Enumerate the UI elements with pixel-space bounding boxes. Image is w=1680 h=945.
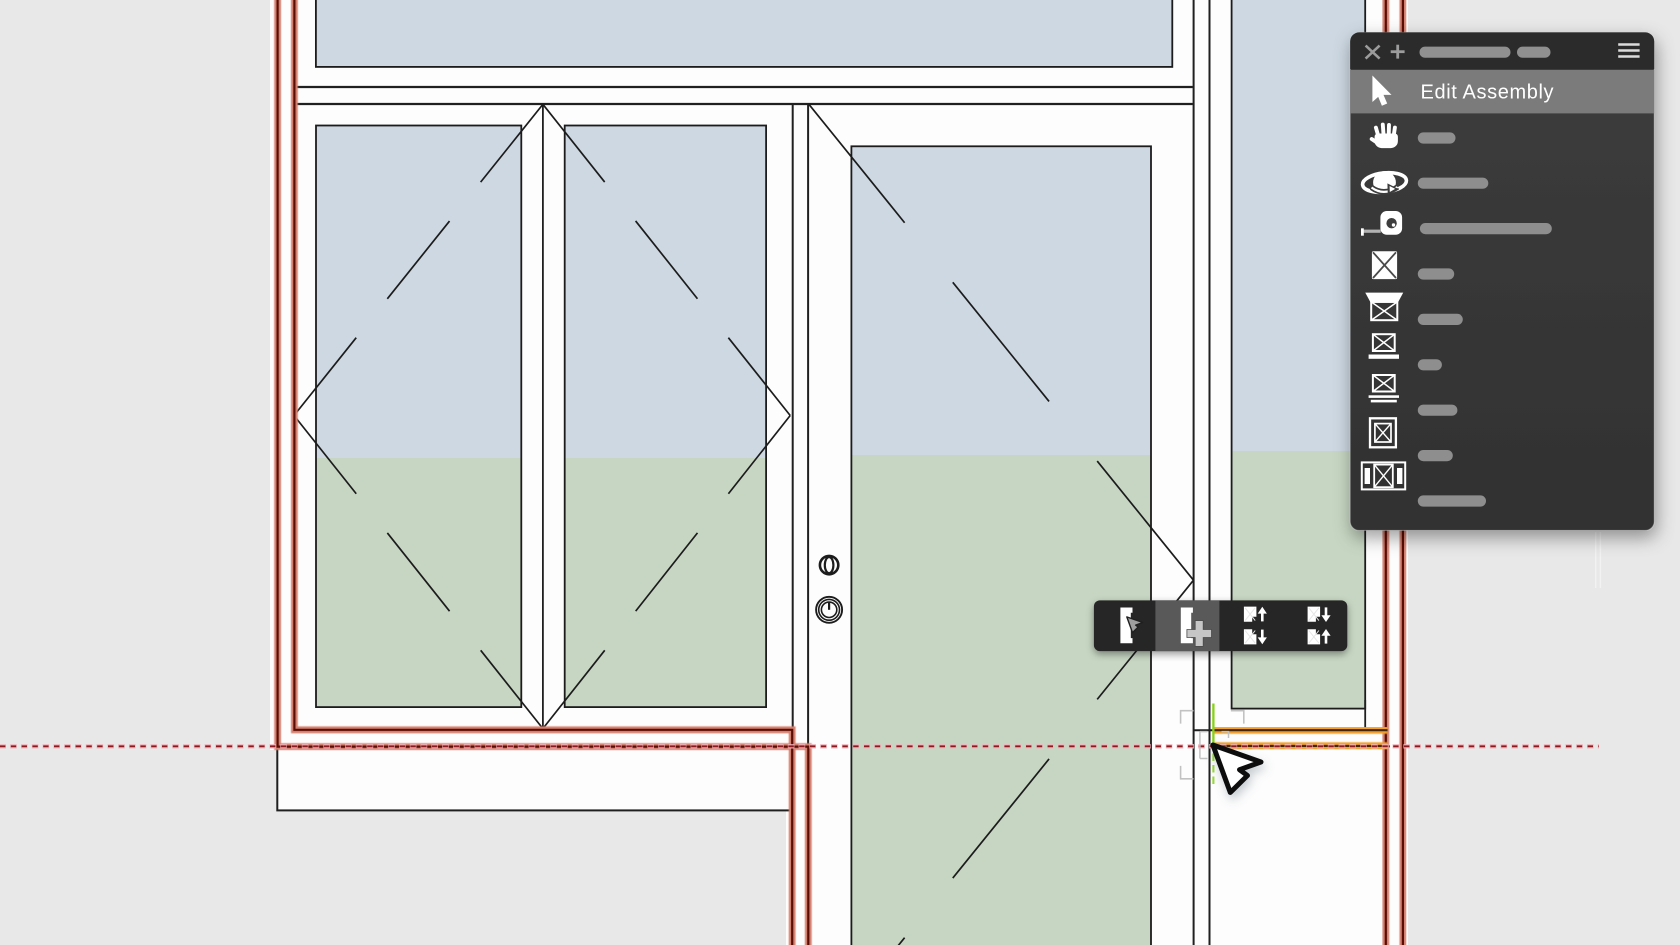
svg-text:Edit Assembly: Edit Assembly	[1421, 82, 1555, 104]
